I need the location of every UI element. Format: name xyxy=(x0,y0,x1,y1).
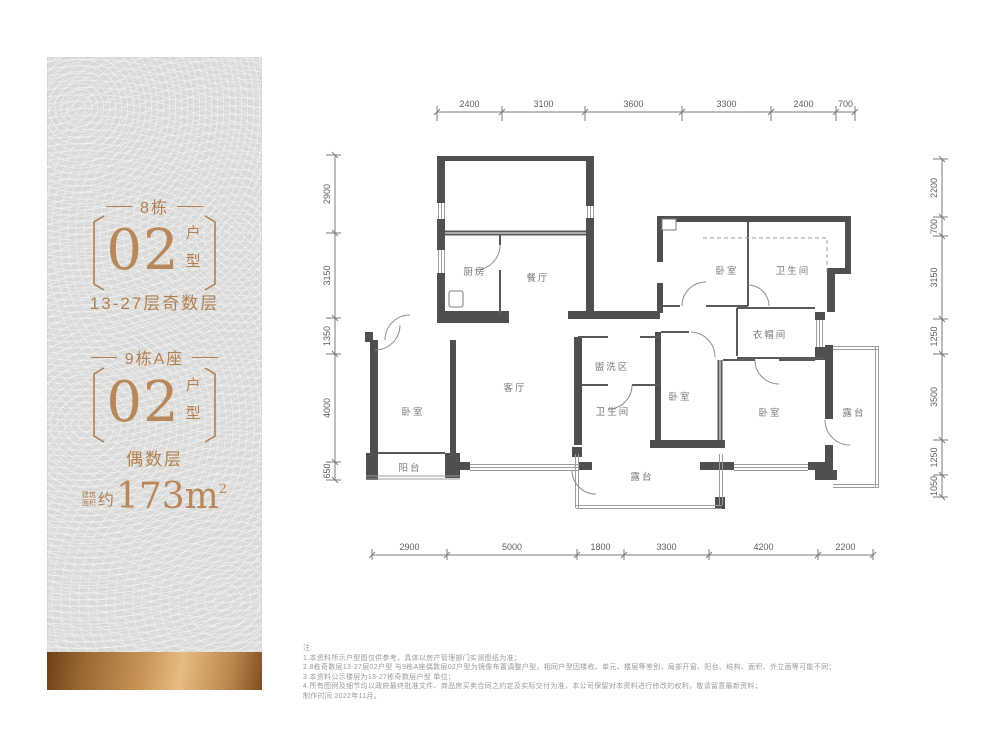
room-label-balcony: 阳台 xyxy=(398,462,421,474)
svg-text:3600: 3600 xyxy=(623,99,643,109)
area-prefix: 建筑 面积 xyxy=(82,492,96,508)
dim-chain-top: 24003100360033002400700 xyxy=(434,99,858,121)
svg-text:2900: 2900 xyxy=(399,542,419,552)
unit-badge-2: 02 户型 xyxy=(47,365,262,445)
room-label-wash-area: 盥洗区 xyxy=(595,361,630,373)
svg-text:3150: 3150 xyxy=(322,265,332,285)
floor-plan: 厨房 餐厅 卧室 卫生间 衣帽间 客厅 卧室 阳台 盥洗区 卫生间 卧室 卧室 … xyxy=(310,85,970,560)
room-label-bedroom-w: 卧室 xyxy=(401,406,424,418)
room-label-dining: 餐厅 xyxy=(526,272,549,284)
svg-text:1250: 1250 xyxy=(929,447,939,467)
svg-text:2400: 2400 xyxy=(793,99,813,109)
area-line: 建筑 面积 约 173m 2 xyxy=(47,479,262,515)
dash-left xyxy=(91,357,117,358)
area-value: 173m xyxy=(116,479,219,515)
note-line: 注: xyxy=(303,644,1000,654)
floors-1: 13-27层奇数层 xyxy=(47,289,262,314)
svg-text:4000: 4000 xyxy=(322,398,332,418)
unit-type-1: 户型 xyxy=(182,225,203,281)
dim-chain-left: 2900315013504000650 xyxy=(322,152,341,483)
svg-text:5000: 5000 xyxy=(502,542,522,552)
room-label-bedroom-mid: 卧室 xyxy=(668,391,691,403)
dash-right xyxy=(177,206,203,207)
svg-text:4200: 4200 xyxy=(753,542,773,552)
room-label-living: 客厅 xyxy=(503,382,526,394)
gold-accent-bar xyxy=(47,652,262,690)
dim-chain-right: 220070031501250350012501050 xyxy=(929,156,948,500)
dim-chain-bottom: 290050001800330042002200 xyxy=(369,542,876,560)
room-label-bath-ne: 卫生间 xyxy=(776,265,811,277)
note-line: 1.本资料所示户型图仅供参考，具体以房产管理部门实测图纸为准； xyxy=(303,654,1000,664)
unit-type-2: 户型 xyxy=(182,377,203,433)
bracket-right-icon xyxy=(203,365,219,445)
svg-text:650: 650 xyxy=(322,463,332,478)
svg-text:700: 700 xyxy=(838,99,853,109)
note-line: 4.所有图例及细节均以政府最终批准文件、商品房买卖合同之约定及实际交付为准，本公… xyxy=(303,682,1000,692)
bracket-left-icon xyxy=(90,213,106,293)
room-label-bedroom-ne: 卧室 xyxy=(715,265,738,277)
bracket-right-icon xyxy=(203,213,219,293)
disclaimer-notes: 注: 1.本资料所示户型图仅供参考，具体以房产管理部门实测图纸为准； 2.8栋奇… xyxy=(303,644,1000,701)
unit-badge-1: 02 户型 xyxy=(47,213,262,293)
svg-text:1350: 1350 xyxy=(322,326,332,346)
bracket-left-icon xyxy=(90,365,106,445)
floors-2: 偶数层 xyxy=(47,445,262,470)
brochure-panel: 8栋 02 户型 13-27层奇数层 9栋A座 02 户型 偶数层 建筑 面积 … xyxy=(47,57,262,690)
unit-number-1: 02 xyxy=(106,213,179,289)
svg-text:2900: 2900 xyxy=(322,184,332,204)
svg-text:1050: 1050 xyxy=(929,476,939,496)
note-line: 3.本资料公示楼层为13-27栋奇数层户型 单位； xyxy=(303,673,1000,683)
room-label-bath-mid: 卫生间 xyxy=(596,406,631,418)
svg-text:3100: 3100 xyxy=(533,99,553,109)
room-label-terrace-e: 露台 xyxy=(842,407,865,419)
area-approx: 约 xyxy=(98,486,114,510)
dash-left xyxy=(106,206,132,207)
svg-text:700: 700 xyxy=(929,219,939,234)
unit-number-2: 02 xyxy=(106,365,179,441)
svg-text:3300: 3300 xyxy=(716,99,736,109)
svg-text:1800: 1800 xyxy=(590,542,610,552)
room-label-terrace-s: 露台 xyxy=(630,471,653,483)
dash-right xyxy=(192,357,218,358)
area-superscript: 2 xyxy=(219,482,227,497)
svg-text:2400: 2400 xyxy=(459,99,479,109)
svg-text:3500: 3500 xyxy=(929,387,939,407)
svg-text:3300: 3300 xyxy=(656,542,676,552)
room-label-cloakroom: 衣帽间 xyxy=(753,329,788,341)
svg-text:3150: 3150 xyxy=(929,267,939,287)
room-labels: 厨房 餐厅 卧室 卫生间 衣帽间 客厅 卧室 阳台 盥洗区 卫生间 卧室 卧室 … xyxy=(398,265,865,483)
room-label-kitchen: 厨房 xyxy=(463,266,486,278)
room-label-bedroom-e: 卧室 xyxy=(758,407,781,419)
svg-text:2200: 2200 xyxy=(835,542,855,552)
svg-text:1250: 1250 xyxy=(929,326,939,346)
note-line: 2.8栋奇数层13-27层02户型 与9栋A座偶数层02户型为镜像布置调整户型，… xyxy=(303,663,1000,673)
note-line: 制作时间:2022年11月。 xyxy=(303,692,1000,702)
svg-text:2200: 2200 xyxy=(929,178,939,198)
